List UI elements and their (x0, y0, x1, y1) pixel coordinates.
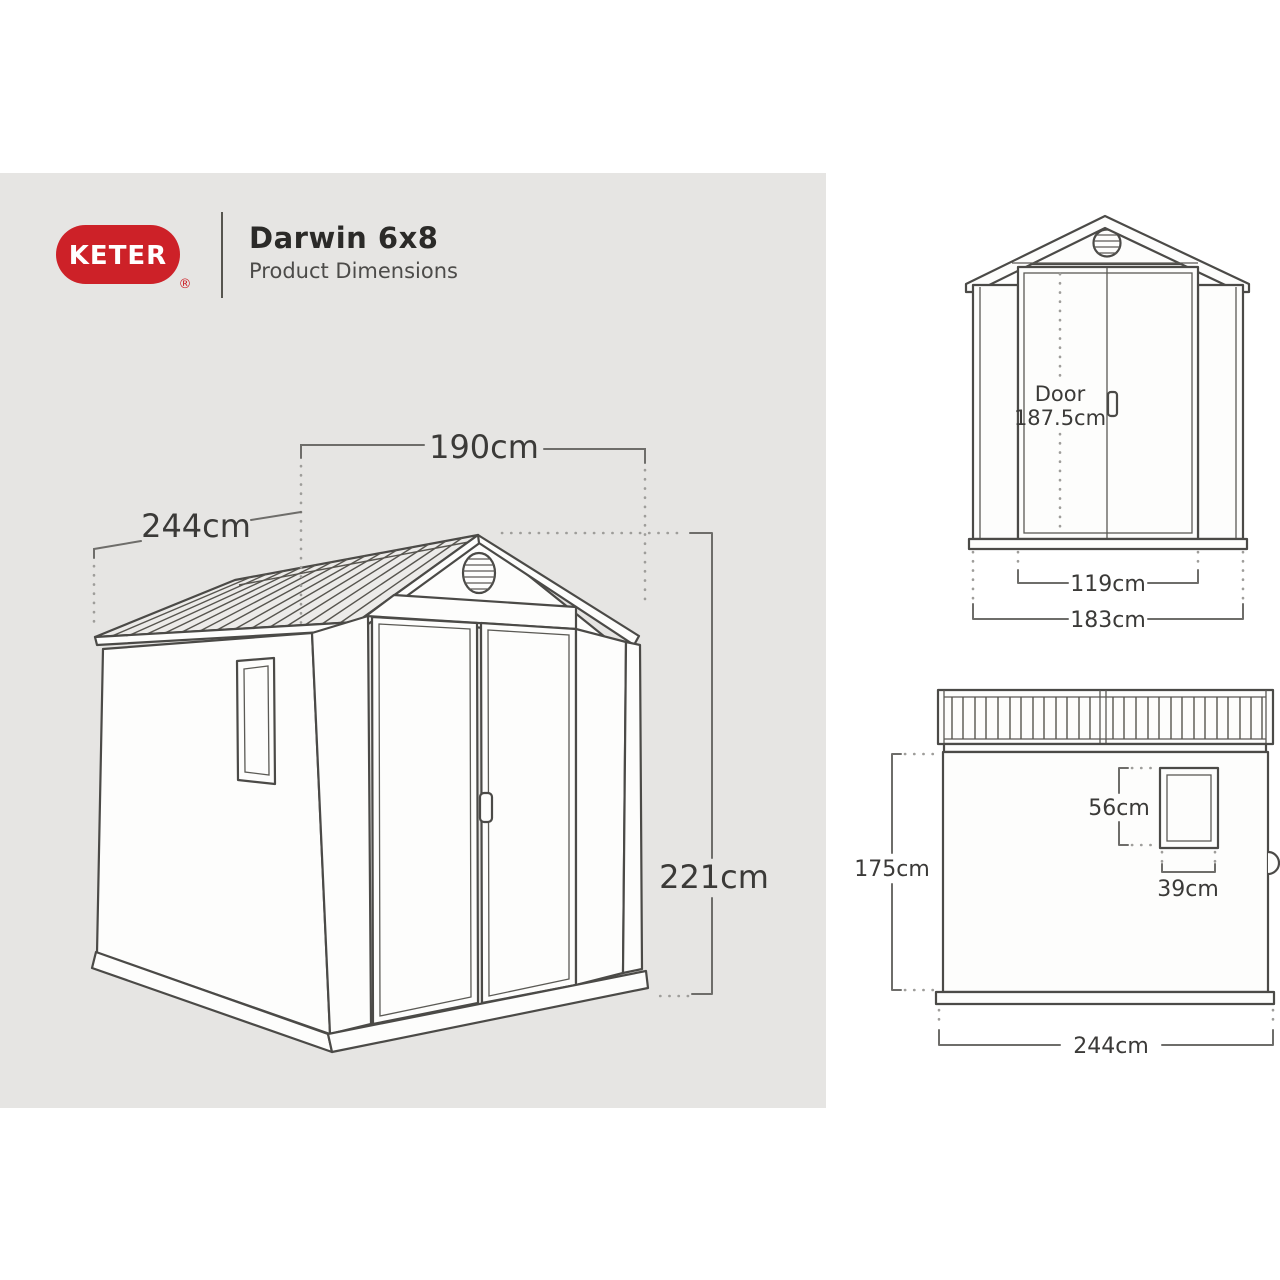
dim-width-label: 190cm (429, 428, 539, 466)
perspective-view: 190cm 244cm 221cm (92, 428, 769, 1052)
dim-height-label: 221cm (659, 858, 769, 896)
front-door-handle (1108, 392, 1117, 416)
door-label: Door (1035, 382, 1086, 406)
side-view: 56cm 39cm 175cm 244cm (854, 690, 1279, 1059)
dim-depth-label: 244cm (141, 507, 251, 545)
side-depth-label: 244cm (1073, 1034, 1149, 1059)
front-view: Door 187.5cm 119cm 183cm (966, 216, 1249, 633)
logo-brand-text: KETER (69, 241, 167, 271)
front-pilaster-left (973, 285, 1018, 539)
front-base (969, 539, 1247, 549)
front-right-trim (623, 642, 642, 973)
overall-width-label: 183cm (1070, 608, 1146, 633)
dim-wall-height-175: 175cm (854, 754, 934, 990)
front-pilaster-right (1198, 285, 1243, 539)
side-view-window (1160, 768, 1218, 848)
shed-door-right (481, 623, 576, 1003)
header-divider (221, 212, 223, 298)
side-base (936, 992, 1274, 1004)
side-wall (943, 752, 1268, 992)
door-handle (480, 793, 492, 822)
side-door-handle (1268, 852, 1279, 874)
front-right-wall (576, 629, 626, 985)
shed-door-left (372, 617, 478, 1024)
door-height-label: 187.5cm (1014, 406, 1106, 430)
keter-logo: KETER ® (55, 222, 195, 302)
page-title: Darwin 6x8 (249, 221, 438, 255)
dim-door-width-119: 119cm (1018, 552, 1198, 597)
window-width-label: 39cm (1157, 877, 1219, 902)
page-subtitle: Product Dimensions (249, 259, 458, 283)
door-width-label: 119cm (1070, 572, 1146, 597)
gable-vent (463, 553, 495, 593)
dim-side-depth-244: 244cm (939, 1010, 1273, 1059)
logo-registered-mark: ® (179, 277, 192, 292)
side-roof (938, 690, 1273, 752)
page: 190cm 244cm 221cm (0, 0, 1280, 1280)
dimensions-drawing: 190cm 244cm 221cm (0, 0, 1280, 1280)
window-height-label: 56cm (1088, 796, 1150, 821)
side-window (237, 658, 275, 784)
wall-height-label: 175cm (854, 857, 930, 882)
